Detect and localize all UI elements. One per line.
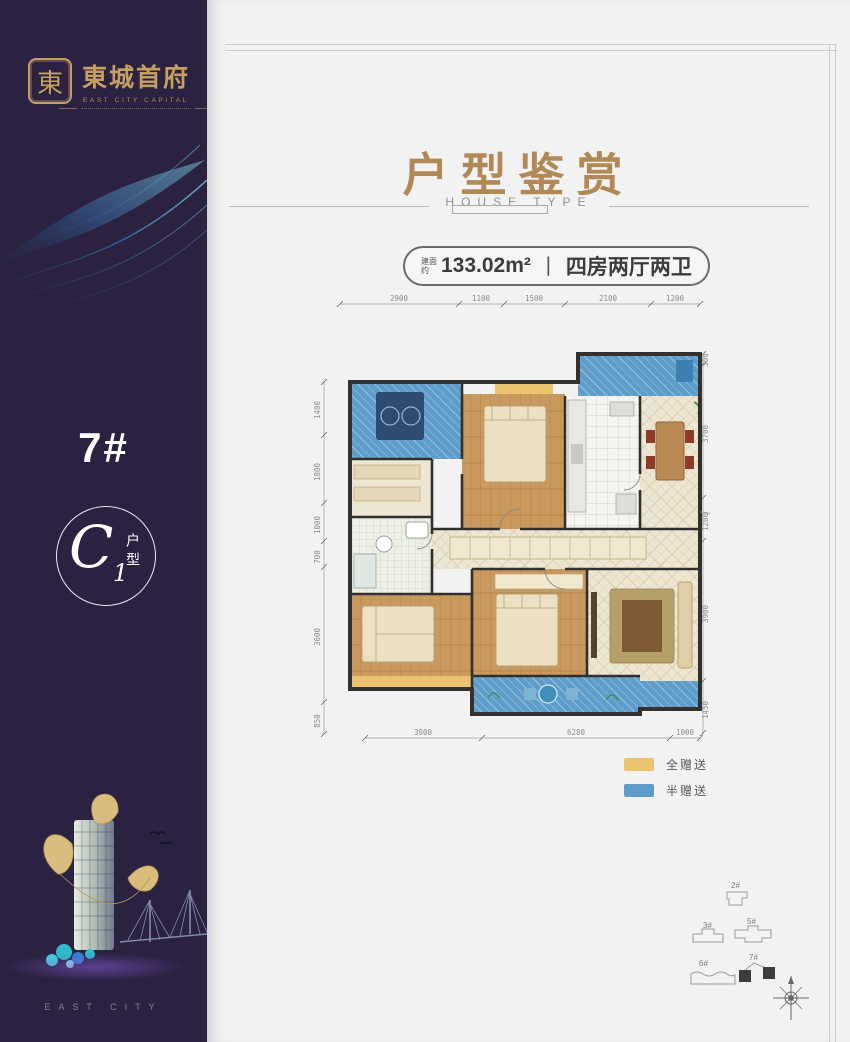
gift-legend: 全赠送 半赠送 — [624, 756, 708, 799]
floor-plan: 2900 1100 1500 2100 1200 1400 1800 1000 … — [310, 294, 710, 744]
svg-text:1400: 1400 — [313, 400, 322, 419]
brand-seal-icon: 東 — [28, 58, 72, 104]
svg-text:3900: 3900 — [414, 728, 433, 737]
svg-text:1450: 1450 — [701, 700, 710, 719]
full-gift-swatch — [624, 758, 654, 771]
badge-separator: 丨 — [538, 251, 559, 281]
night-tower-illustration — [0, 782, 207, 982]
svg-text:850: 850 — [313, 714, 322, 728]
brand-sidebar: 東 東城首府 EAST CITY CAPITAL 7# — [0, 0, 207, 1042]
sidebar-footer-text: EAST CITY — [0, 1002, 207, 1012]
tower-body — [74, 820, 114, 950]
half-gift-swatch — [624, 784, 654, 797]
flyer-page: 東 東城首府 EAST CITY CAPITAL 7# — [0, 0, 850, 1042]
siteplan-building-2 — [727, 892, 747, 905]
brand-tagline — [81, 108, 191, 114]
svg-text:2100: 2100 — [599, 294, 618, 303]
area-value: 133.02m² — [441, 254, 531, 278]
siteplan-building-7-link — [745, 963, 766, 970]
legend-item-half: 半赠送 — [624, 782, 708, 799]
tv-cabinet — [591, 592, 597, 658]
bridge-illustration — [120, 890, 207, 942]
bed-top — [484, 406, 546, 482]
layout-value: 四房两厅两卫 — [566, 251, 692, 281]
unit-type-letter: C — [69, 513, 113, 581]
compass-icon — [773, 976, 809, 1020]
brand-name: 東城首府 — [82, 58, 190, 94]
legend-item-full: 全赠送 — [624, 756, 708, 773]
siteplan-label-7: 7# — [749, 953, 758, 962]
brand-name-en: EAST CITY CAPITAL — [83, 97, 189, 104]
unit-info-badge: 建面约 133.02m² 丨 四房两厅两卫 — [403, 246, 710, 286]
siteplan-building-6 — [691, 972, 735, 984]
svg-text:1200: 1200 — [701, 512, 710, 531]
frame-top-line — [225, 44, 837, 51]
svg-text:2900: 2900 — [390, 294, 409, 303]
wardrobe-strip — [450, 537, 646, 559]
frame-right-line — [829, 44, 836, 1042]
svg-text:3600: 3600 — [313, 627, 322, 646]
siteplan-label-2: 2# — [731, 881, 740, 890]
area-prefix: 建面约 — [421, 257, 439, 275]
bed-middle — [496, 594, 558, 666]
birds-icon — [150, 832, 172, 844]
sink-icon — [406, 522, 428, 538]
unit-type-badge: C 1 户型 — [56, 506, 156, 606]
siteplan-building-3 — [693, 929, 723, 942]
site-plan: 2# 3# 5# 6# 7# — [687, 872, 819, 1024]
siteplan-label-6: 6# — [699, 959, 708, 968]
seal-character: 東 — [37, 63, 63, 100]
toilet-icon — [376, 536, 392, 552]
svg-text:1000: 1000 — [313, 515, 322, 534]
svg-text:700: 700 — [313, 550, 322, 564]
sofa — [678, 582, 692, 668]
content-panel: 户型鉴赏 HOUSE TYPE 建面约 133.02m² 丨 四房两厅两卫 — [207, 0, 850, 1042]
svg-text:1200: 1200 — [666, 294, 685, 303]
feather-graphic — [0, 120, 207, 350]
svg-text:1800: 1800 — [313, 462, 322, 481]
balcony-table — [539, 685, 557, 703]
svg-text:300: 300 — [701, 353, 710, 367]
dining-table — [656, 422, 684, 480]
svg-text:6280: 6280 — [567, 728, 586, 737]
svg-text:1100: 1100 — [472, 294, 491, 303]
svg-text:3900: 3900 — [701, 604, 710, 623]
siteplan-building-7a — [739, 970, 751, 982]
brand-logo: 東 東城首府 EAST CITY CAPITAL — [28, 58, 191, 114]
brand-text-block: 東城首府 EAST CITY CAPITAL — [81, 58, 191, 114]
siteplan-label-5: 5# — [747, 917, 756, 926]
svg-text:1500: 1500 — [525, 294, 544, 303]
building-number: 7# — [0, 424, 207, 472]
washing-area — [376, 392, 424, 440]
full-gift-label: 全赠送 — [666, 756, 708, 773]
svg-text:1000: 1000 — [676, 728, 695, 737]
coffee-table — [622, 600, 662, 652]
siteplan-building-5 — [735, 926, 771, 942]
svg-text:3700: 3700 — [701, 424, 710, 443]
shower-icon — [354, 554, 376, 588]
subtitle-ornament-box — [452, 205, 548, 214]
unit-type-suffix: 户型 — [123, 533, 143, 571]
half-gift-label: 半赠送 — [666, 782, 708, 799]
siteplan-building-7b — [763, 967, 775, 979]
